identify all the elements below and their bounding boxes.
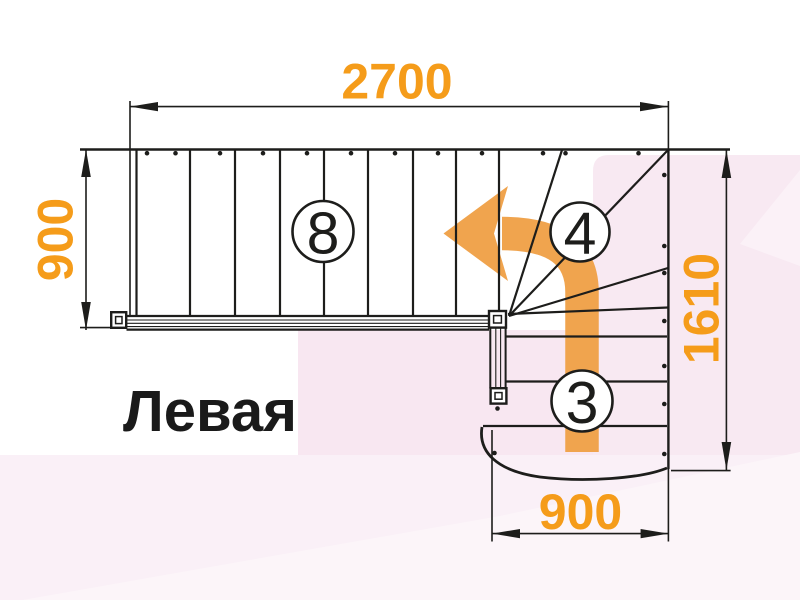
dimension-arrowhead — [640, 102, 668, 111]
baluster-dot — [218, 151, 223, 156]
baluster-dot — [662, 173, 667, 178]
baluster-dot — [393, 151, 398, 156]
plan-title: Левая — [123, 379, 297, 444]
newel-post-inner — [116, 317, 122, 324]
baluster-dot — [636, 151, 641, 156]
step-count-winder: 4 — [564, 201, 597, 267]
dimension-label-bottom: 900 — [539, 484, 622, 540]
step-count-lower: 3 — [566, 370, 599, 436]
baluster-dot — [173, 151, 178, 156]
baluster-dot — [436, 151, 441, 156]
baluster-dot — [662, 319, 667, 324]
dimension-arrowhead — [130, 102, 158, 111]
baluster-dot — [662, 271, 667, 276]
baluster-dot — [541, 151, 546, 156]
step-count-upper: 8 — [307, 201, 340, 267]
newel-post-inner — [495, 393, 502, 400]
baluster-dot — [261, 151, 266, 156]
newel-post-inner — [494, 316, 502, 323]
baluster-dot — [145, 151, 150, 156]
baluster-dot — [662, 364, 667, 369]
baluster-dot — [662, 452, 667, 457]
background-panels — [0, 155, 800, 600]
baluster-dot — [662, 402, 667, 407]
baluster-dot — [349, 151, 354, 156]
dimension-label-top: 2700 — [341, 54, 452, 110]
dimension-arrowhead — [81, 302, 91, 330]
dimension-label-left: 900 — [28, 198, 84, 281]
baluster-dot — [492, 451, 497, 456]
stair-plan-drawing: 8 4 3 2700 900 1610 900 Левая — [0, 0, 800, 600]
baluster-dot — [305, 151, 310, 156]
upper-stringer-band — [127, 316, 490, 330]
baluster-dot — [563, 151, 568, 156]
background-mid-block — [298, 330, 593, 455]
dimension-label-right: 1610 — [674, 253, 730, 364]
dimension-left-900: 900 — [28, 150, 113, 331]
dimension-arrowhead — [81, 150, 91, 178]
stair-plan-page: 8 4 3 2700 900 1610 900 Левая — [0, 0, 800, 600]
baluster-dot — [480, 151, 485, 156]
baluster-dot — [662, 244, 667, 249]
baluster-dot — [495, 406, 500, 411]
